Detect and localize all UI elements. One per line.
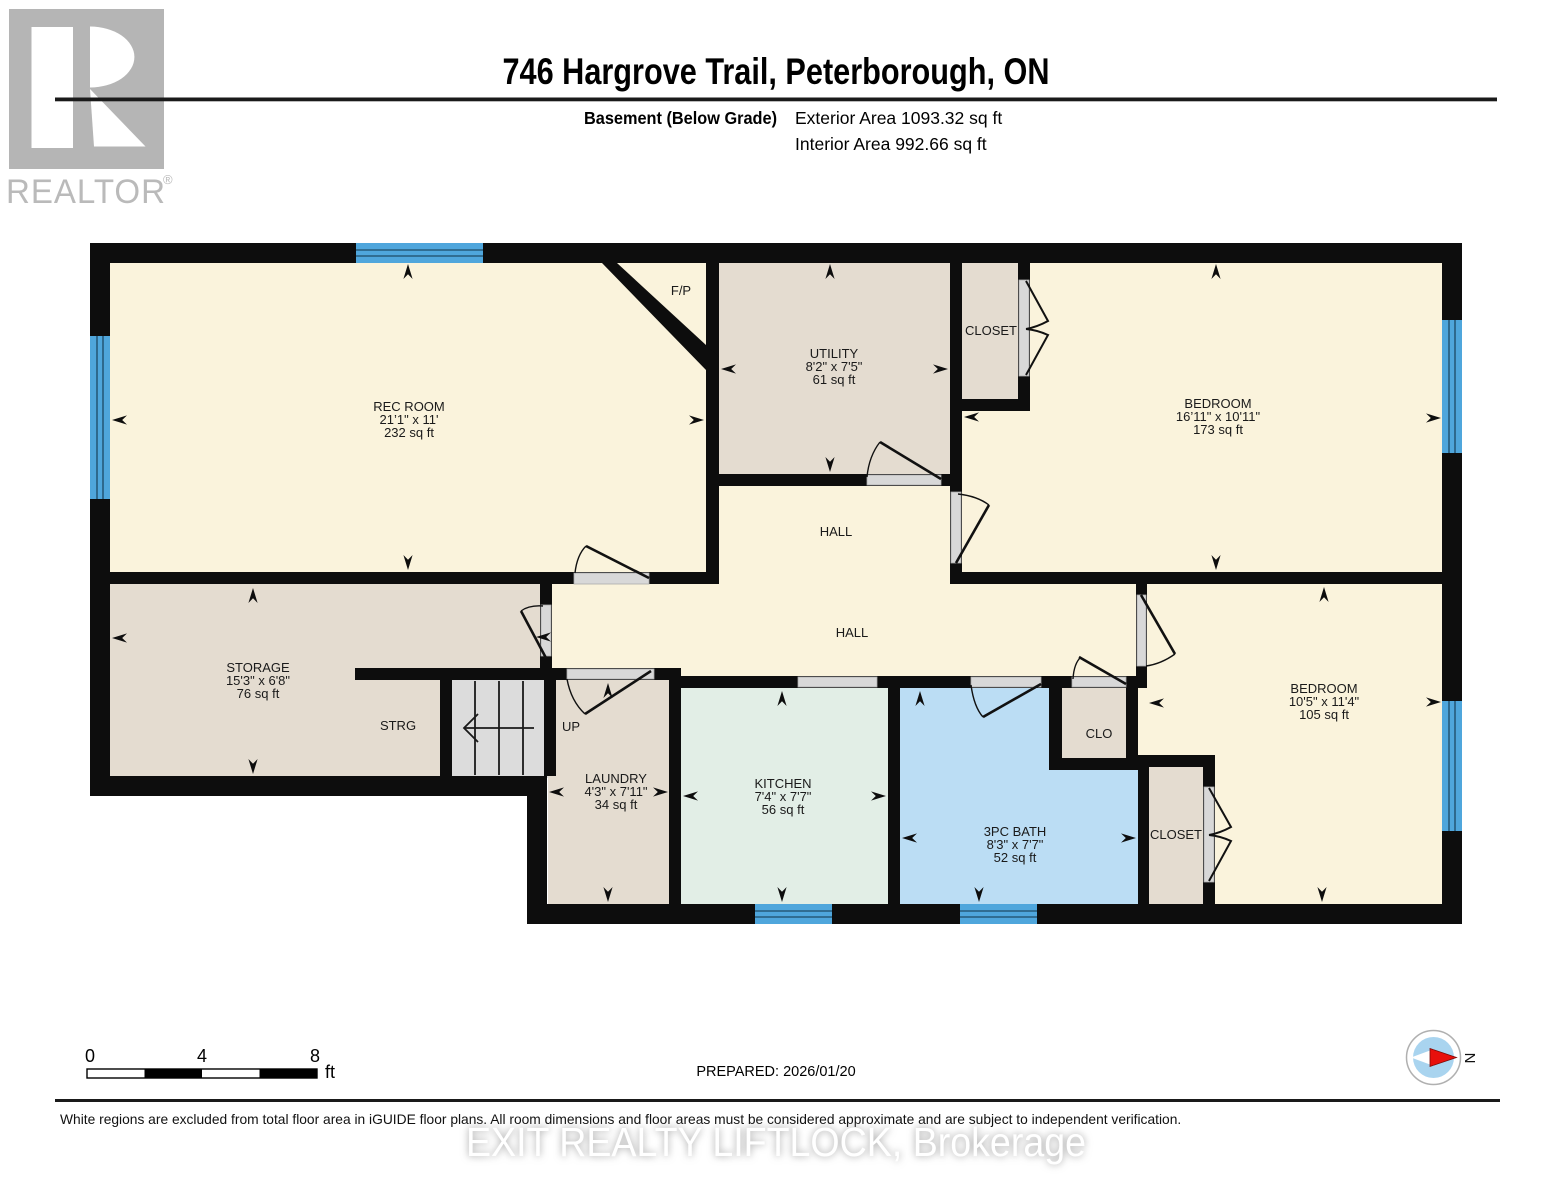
svg-text:34 sq ft: 34 sq ft xyxy=(595,797,638,812)
svg-text:8: 8 xyxy=(310,1046,320,1066)
svg-text:CLO: CLO xyxy=(1086,726,1113,741)
svg-text:UP: UP xyxy=(562,719,580,734)
svg-text:4: 4 xyxy=(197,1046,207,1066)
svg-text:Basement (Below Grade): Basement (Below Grade) xyxy=(584,108,777,128)
svg-text:HALL: HALL xyxy=(820,524,853,539)
svg-text:CLOSET: CLOSET xyxy=(1150,827,1202,842)
svg-text:52 sq ft: 52 sq ft xyxy=(994,850,1037,865)
svg-text:232 sq ft: 232 sq ft xyxy=(384,425,434,440)
svg-text:76 sq ft: 76 sq ft xyxy=(237,686,280,701)
svg-text:ft: ft xyxy=(325,1062,335,1082)
svg-text:746 Hargrove Trail, Peterborou: 746 Hargrove Trail, Peterborough, ON xyxy=(503,51,1050,92)
svg-text:STRG: STRG xyxy=(380,718,416,733)
svg-text:0: 0 xyxy=(85,1046,95,1066)
svg-text:HALL: HALL xyxy=(836,625,869,640)
svg-text:PREPARED: 2026/01/20: PREPARED: 2026/01/20 xyxy=(696,1064,855,1080)
svg-text:®: ® xyxy=(163,172,173,187)
svg-text:REALTOR: REALTOR xyxy=(6,173,166,211)
svg-text:105 sq ft: 105 sq ft xyxy=(1299,707,1349,722)
svg-text:Interior Area 992.66 sq ft: Interior Area 992.66 sq ft xyxy=(795,134,987,154)
svg-text:173 sq ft: 173 sq ft xyxy=(1193,422,1243,437)
svg-text:Exterior Area 1093.32 sq ft: Exterior Area 1093.32 sq ft xyxy=(795,108,1002,128)
svg-text:N: N xyxy=(1461,1053,1478,1064)
svg-text:F/P: F/P xyxy=(671,283,691,298)
svg-text:61 sq ft: 61 sq ft xyxy=(813,372,856,387)
svg-text:EXIT REALTY LIFTLOCK, Brokerag: EXIT REALTY LIFTLOCK, Brokerage xyxy=(466,1119,1086,1165)
svg-text:CLOSET: CLOSET xyxy=(965,323,1017,338)
svg-text:56 sq ft: 56 sq ft xyxy=(762,802,805,817)
